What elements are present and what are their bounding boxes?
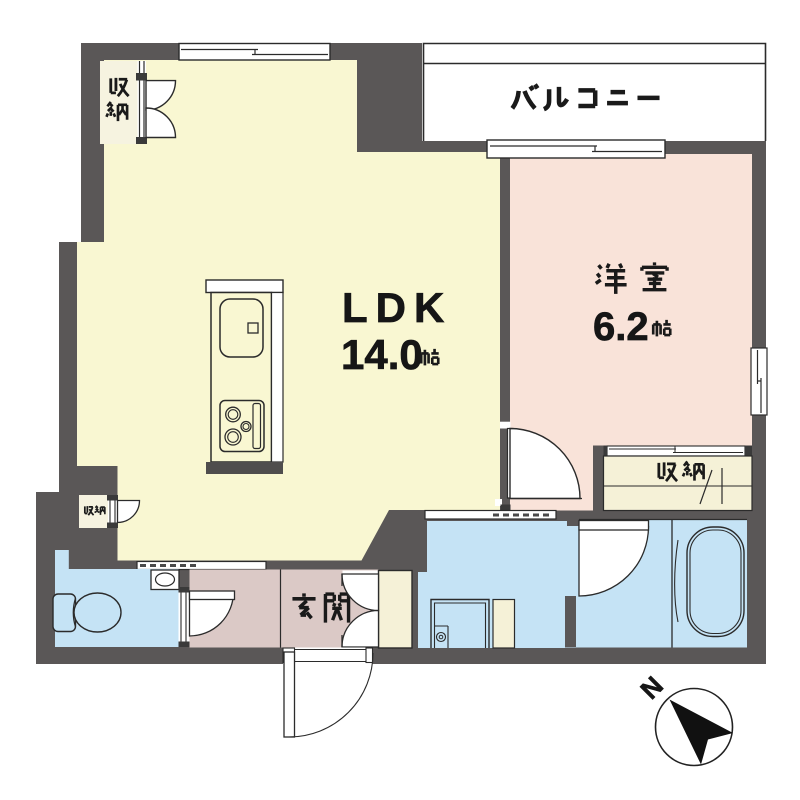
svg-text:6.2: 6.2 — [593, 305, 649, 349]
svg-text:14.0: 14.0 — [341, 331, 423, 378]
svg-text:N: N — [634, 670, 668, 704]
svg-text:LDK: LDK — [342, 284, 452, 331]
